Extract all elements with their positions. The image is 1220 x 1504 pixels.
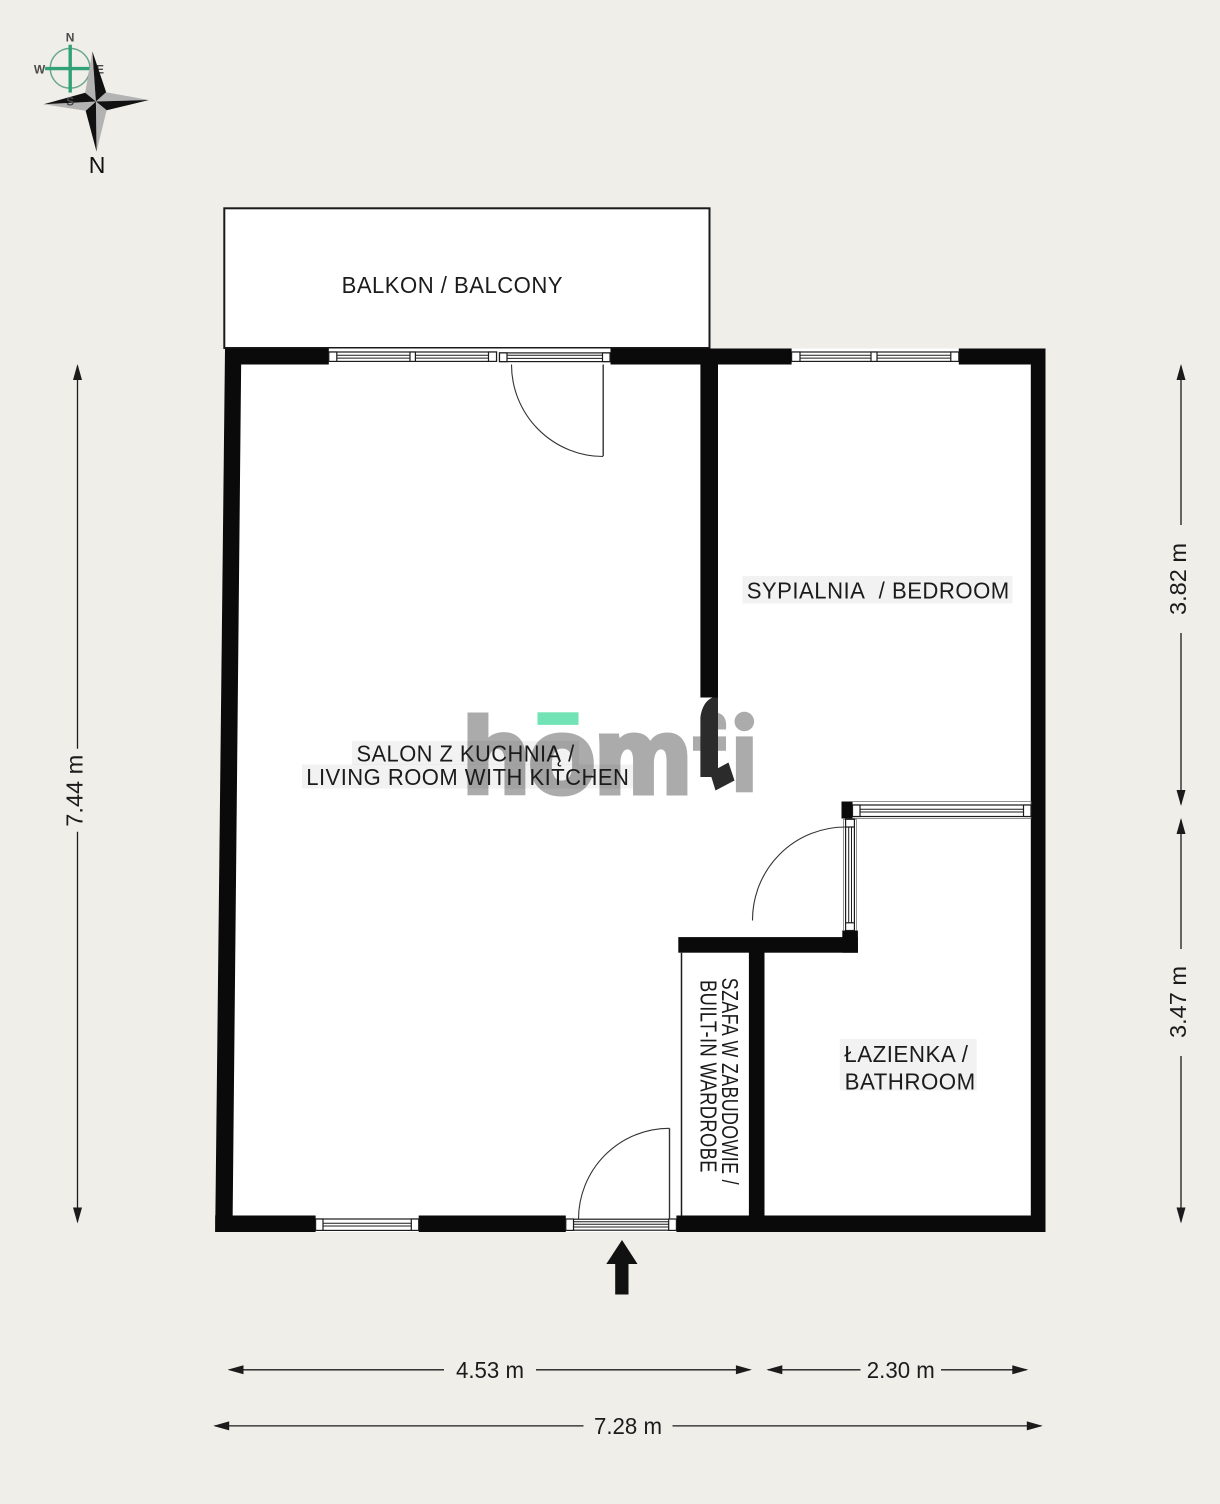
svg-text:4.53 m: 4.53 m [456,1357,524,1383]
svg-text:2.30 m: 2.30 m [867,1357,935,1383]
svg-text:SALON Z KUCHNIĄ /: SALON Z KUCHNIĄ / [356,741,574,767]
svg-text:SYPIALNIA / BEDROOM: SYPIALNIA / BEDROOM [747,577,1010,603]
svg-text:LIVING ROOM WITH KITCHEN: LIVING ROOM WITH KITCHEN [306,764,629,790]
svg-text:BALKON / BALCONY: BALKON / BALCONY [342,272,563,298]
svg-text:N: N [89,152,106,178]
svg-text:BUILT-IN WARDROBE: BUILT-IN WARDROBE [695,980,721,1173]
svg-text:3.47 m: 3.47 m [1165,966,1191,1038]
svg-text:W: W [34,63,46,77]
svg-text:ŁAZIENKA /: ŁAZIENKA / [844,1041,968,1067]
svg-text:BATHROOM: BATHROOM [845,1068,976,1094]
svg-text:7.28 m: 7.28 m [594,1413,662,1439]
svg-text:3.82 m: 3.82 m [1165,543,1191,615]
svg-text:N: N [66,31,75,45]
svg-text:7.44 m: 7.44 m [62,755,88,827]
svg-text:S: S [66,95,74,109]
